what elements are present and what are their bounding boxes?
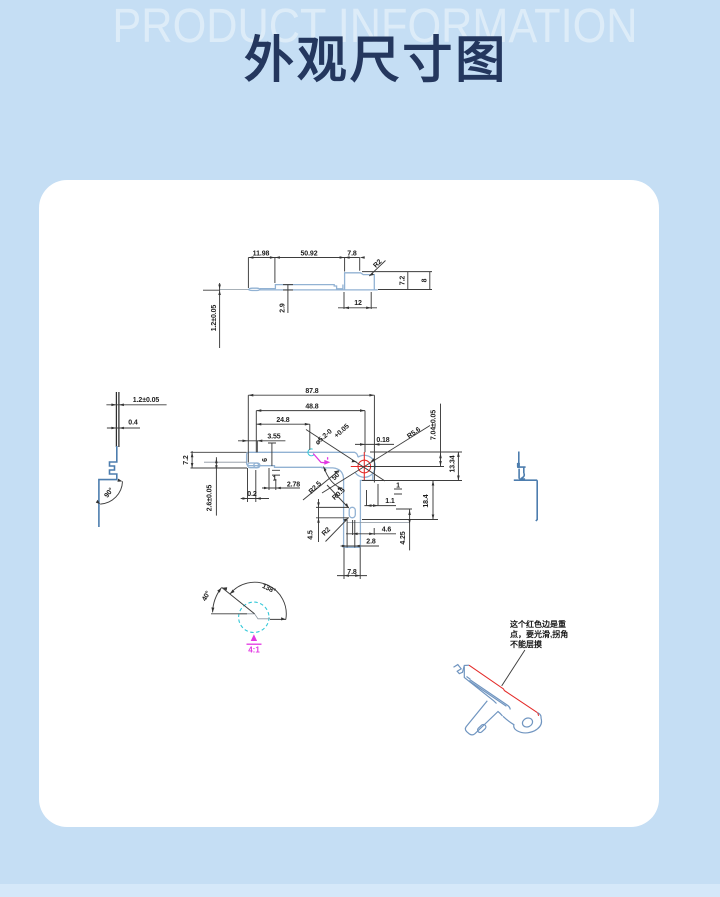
svg-text:6: 6: [262, 458, 269, 462]
svg-text:2.78: 2.78: [287, 482, 300, 489]
svg-text:R5.6: R5.6: [406, 426, 422, 440]
svg-text:13.34: 13.34: [450, 455, 457, 472]
svg-text:2.9: 2.9: [280, 303, 287, 313]
svg-text:18.4: 18.4: [423, 494, 430, 507]
svg-text:11.98: 11.98: [253, 251, 270, 258]
svg-text:R2.5: R2.5: [308, 480, 323, 495]
svg-text:4.25: 4.25: [400, 531, 407, 544]
svg-text:1: 1: [396, 483, 400, 490]
svg-text:2.6±0.05: 2.6±0.05: [207, 485, 214, 512]
svg-text:8: 8: [422, 278, 429, 282]
svg-text:40°: 40°: [200, 589, 212, 602]
svg-text:7.04±0.05: 7.04±0.05: [431, 410, 438, 440]
svg-text:+0.05: +0.05: [333, 423, 351, 440]
svg-text:0.2: 0.2: [247, 491, 257, 498]
svg-text:1.1: 1.1: [385, 498, 395, 505]
svg-text:不能层摸: 不能层摸: [510, 639, 542, 649]
svg-text:87.8: 87.8: [305, 388, 318, 395]
svg-text:7.8: 7.8: [347, 569, 357, 576]
svg-text:24.8: 24.8: [276, 417, 289, 424]
svg-text:3.55: 3.55: [267, 434, 280, 441]
svg-text:7.2: 7.2: [400, 276, 407, 286]
svg-text:48.8: 48.8: [305, 403, 318, 410]
svg-text:12: 12: [354, 300, 362, 307]
svg-text:1.2±0.05: 1.2±0.05: [211, 305, 218, 332]
svg-text:90°: 90°: [103, 486, 116, 499]
svg-text:138°: 138°: [261, 582, 277, 595]
svg-text:1.2±0.05: 1.2±0.05: [133, 397, 160, 404]
svg-text:0.18: 0.18: [376, 437, 389, 444]
svg-text:7.2: 7.2: [183, 455, 190, 465]
svg-text:这个红色边是重: 这个红色边是重: [510, 619, 566, 629]
svg-text:4:1: 4:1: [248, 646, 260, 655]
svg-text:R0.5: R0.5: [331, 487, 347, 502]
svg-text:4.5: 4.5: [308, 530, 315, 540]
svg-text:4.6: 4.6: [382, 527, 392, 534]
svg-text:R2: R2: [372, 258, 383, 269]
svg-text:2.8: 2.8: [366, 539, 376, 546]
svg-text:点，要光滑,拐角: 点，要光滑,拐角: [510, 629, 568, 639]
svg-text:7.8: 7.8: [347, 251, 357, 258]
svg-text:0.4: 0.4: [128, 420, 138, 427]
svg-text:50.92: 50.92: [300, 251, 317, 258]
